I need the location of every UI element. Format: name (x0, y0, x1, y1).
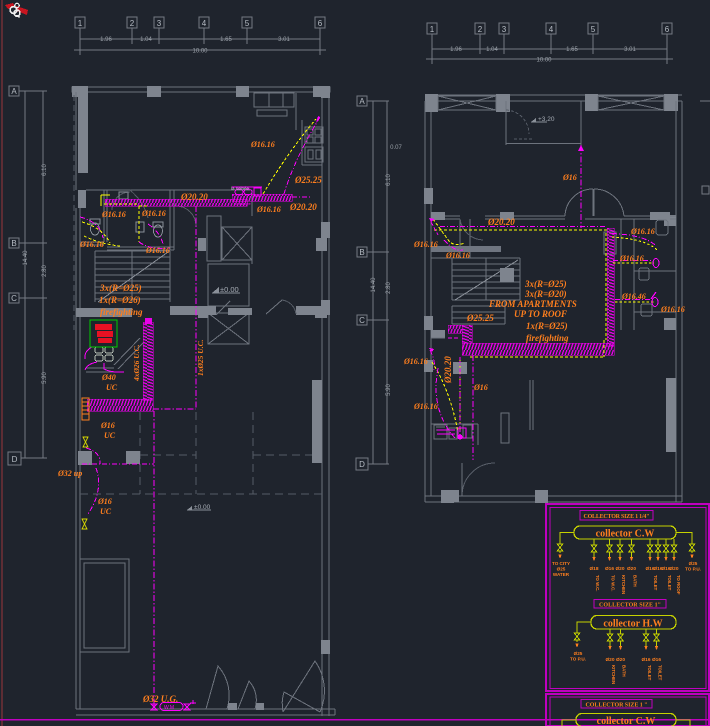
svg-text:Ø16.16: Ø16.16 (141, 209, 166, 218)
svg-text:Ø16.16: Ø16.16 (630, 227, 655, 236)
svg-text:Ø16.16: Ø16.16 (413, 240, 438, 249)
svg-text:1: 1 (78, 19, 83, 28)
svg-text:Ø32 U.G.: Ø32 U.G. (142, 694, 178, 704)
svg-text:TOILET: TOILET (653, 575, 658, 591)
svg-text:Ø16: Ø16 (605, 566, 614, 572)
svg-text:6: 6 (318, 19, 323, 28)
svg-text:w. solnée: w. solnée (234, 201, 251, 206)
svg-text:2: 2 (478, 25, 483, 34)
svg-text:4xØ26 U.C.: 4xØ26 U.C. (132, 344, 141, 382)
svg-text:3x(R=Ø25): 3x(R=Ø25) (99, 283, 142, 293)
svg-text:6.10: 6.10 (386, 174, 392, 186)
svg-text:Ø16.16: Ø16.16 (101, 210, 126, 219)
svg-text:Ø40: Ø40 (101, 373, 116, 382)
svg-text:C: C (359, 316, 365, 325)
svg-text:+3.20: +3.20 (538, 116, 555, 123)
svg-text:3.01: 3.01 (624, 47, 636, 53)
svg-text:3: 3 (157, 19, 162, 28)
svg-text:FROM APARTMENTS: FROM APARTMENTS (488, 299, 577, 309)
svg-text:Ø16.46: Ø16.46 (621, 292, 646, 301)
svg-text:10.00: 10.00 (192, 49, 208, 55)
svg-text:Ø16: Ø16 (641, 657, 650, 663)
svg-text:B: B (359, 248, 364, 257)
svg-text:KITCHEN: KITCHEN (611, 665, 616, 684)
svg-text:14.40: 14.40 (371, 277, 377, 293)
svg-text:Ø16.16: Ø16.16 (403, 357, 428, 366)
svg-text:Ø16: Ø16 (652, 657, 661, 663)
svg-text:1.96: 1.96 (450, 47, 462, 53)
svg-text:Ø16.16: Ø16.16 (145, 246, 170, 255)
svg-text:Ø20.20: Ø20.20 (180, 192, 208, 202)
svg-text:UP TO ROOF: UP TO ROOF (514, 309, 567, 319)
svg-text:6: 6 (665, 25, 670, 34)
svg-text:TO W.C.: TO W.C. (611, 575, 616, 591)
svg-text:la solnée: la solnée (231, 186, 250, 191)
svg-text:3.01: 3.01 (278, 37, 290, 43)
svg-text:Ø16.16: Ø16.16 (619, 254, 644, 263)
svg-text:COLLECTOR SIZE 1 ": COLLECTOR SIZE 1 " (586, 703, 648, 709)
svg-text:5: 5 (591, 25, 596, 34)
svg-text:collector H.W: collector H.W (603, 619, 662, 630)
svg-text:D: D (359, 460, 365, 469)
svg-text:TO ROOF: TO ROOF (676, 575, 681, 595)
svg-text:Ø16: Ø16 (562, 173, 577, 182)
svg-text:5: 5 (245, 19, 250, 28)
svg-text:TOILET: TOILET (658, 665, 663, 681)
svg-text:Ø16.16: Ø16.16 (256, 205, 281, 214)
svg-text:C: C (11, 294, 17, 303)
svg-text:10.00: 10.00 (536, 58, 552, 64)
svg-text:Ø20.20: Ø20.20 (443, 356, 453, 384)
svg-text:Ø20: Ø20 (627, 566, 636, 572)
svg-text:UC: UC (106, 383, 118, 392)
svg-text:Ø16.16: Ø16.16 (413, 402, 438, 411)
svg-text:Ø20: Ø20 (615, 566, 624, 572)
svg-text:Ø16.16: Ø16.16 (250, 140, 275, 149)
svg-text:Ø20: Ø20 (669, 566, 678, 572)
svg-text:firefighting: firefighting (100, 307, 143, 317)
svg-text:Ø16: Ø16 (100, 421, 115, 430)
svg-text:A: A (11, 87, 17, 96)
svg-text:6.10: 6.10 (42, 164, 48, 176)
svg-text:Ø32 up: Ø32 up (57, 469, 82, 478)
svg-text:1x(R=Ø25): 1x(R=Ø25) (526, 321, 568, 331)
svg-text:Ø20: Ø20 (616, 657, 625, 663)
svg-text:BATH: BATH (633, 575, 638, 587)
svg-text:WATER: WATER (553, 572, 570, 577)
svg-text:0.07: 0.07 (390, 145, 402, 151)
svg-text:1.65: 1.65 (566, 47, 578, 53)
svg-text:Ø25.25: Ø25.25 (294, 175, 322, 185)
svg-text:3x(R=Ø25): 3x(R=Ø25) (524, 279, 567, 289)
svg-text:14.40: 14.40 (23, 250, 29, 266)
svg-text:UC: UC (104, 431, 116, 440)
svg-text:W.M: W.M (164, 705, 174, 711)
svg-text:COLLECTOR SIZE 1": COLLECTOR SIZE 1" (599, 603, 661, 609)
svg-text:TO W.C.: TO W.C. (595, 575, 600, 591)
svg-text:Ø18: Ø18 (589, 566, 598, 572)
svg-text:2.80: 2.80 (386, 282, 392, 294)
svg-text:3x(R=Ø20): 3x(R=Ø20) (524, 289, 567, 299)
svg-text:±0.00: ±0.00 (194, 504, 211, 511)
svg-text:1x(R=Ø26): 1x(R=Ø26) (99, 295, 141, 305)
svg-text:Ø16: Ø16 (473, 383, 488, 392)
svg-text:Ø20: Ø20 (605, 657, 614, 663)
svg-text:UC: UC (100, 507, 112, 516)
svg-text:KITCHEN: KITCHEN (621, 575, 626, 594)
svg-text:Ø25: Ø25 (557, 567, 566, 572)
svg-text:2: 2 (130, 19, 135, 28)
svg-text:Ø25.25: Ø25.25 (466, 313, 494, 323)
svg-text:Ø20.20: Ø20.20 (487, 217, 515, 227)
svg-text:5.90: 5.90 (42, 372, 48, 384)
svg-text:5.90: 5.90 (386, 384, 392, 396)
svg-text:D: D (12, 455, 18, 464)
svg-text:Ø16.16: Ø16.16 (445, 251, 470, 260)
svg-text:4: 4 (202, 19, 207, 28)
svg-text:3: 3 (502, 25, 507, 34)
svg-text:1: 1 (430, 25, 435, 34)
svg-text:TO P.U.: TO P.U. (570, 657, 586, 662)
svg-text:1.96: 1.96 (100, 37, 112, 43)
svg-text:1.65: 1.65 (220, 37, 232, 43)
svg-text:BATH: BATH (622, 665, 627, 677)
svg-text:TO CITY: TO CITY (552, 561, 570, 566)
svg-text:Ø25: Ø25 (689, 561, 698, 566)
svg-text:collector C.W: collector C.W (597, 716, 656, 726)
svg-text:TO P.U.: TO P.U. (685, 567, 701, 572)
svg-text:Ø16.16: Ø16.16 (660, 305, 685, 314)
svg-text:TOILET: TOILET (667, 575, 672, 591)
svg-text:firefighting: firefighting (526, 333, 569, 343)
svg-text:TOILET: TOILET (647, 665, 652, 681)
svg-text:Ø25: Ø25 (574, 651, 583, 656)
svg-text:COLLECTOR SIZE 1 1/4": COLLECTOR SIZE 1 1/4" (584, 514, 650, 520)
svg-text:2.80: 2.80 (42, 265, 48, 277)
svg-text:±0.00: ±0.00 (220, 285, 239, 294)
svg-text:Ø16.16: Ø16.16 (79, 240, 104, 249)
svg-text:A: A (359, 97, 365, 106)
svg-text:B: B (11, 239, 16, 248)
svg-text:4: 4 (549, 25, 554, 34)
svg-text:Ø16: Ø16 (97, 497, 112, 506)
svg-text:1.04: 1.04 (140, 37, 152, 43)
svg-text:1xØ25 U.C.: 1xØ25 U.C. (196, 339, 205, 376)
svg-text:Ø20.20: Ø20.20 (289, 202, 317, 212)
svg-text:collector C.W: collector C.W (596, 529, 655, 540)
svg-text:1.04: 1.04 (486, 47, 498, 53)
